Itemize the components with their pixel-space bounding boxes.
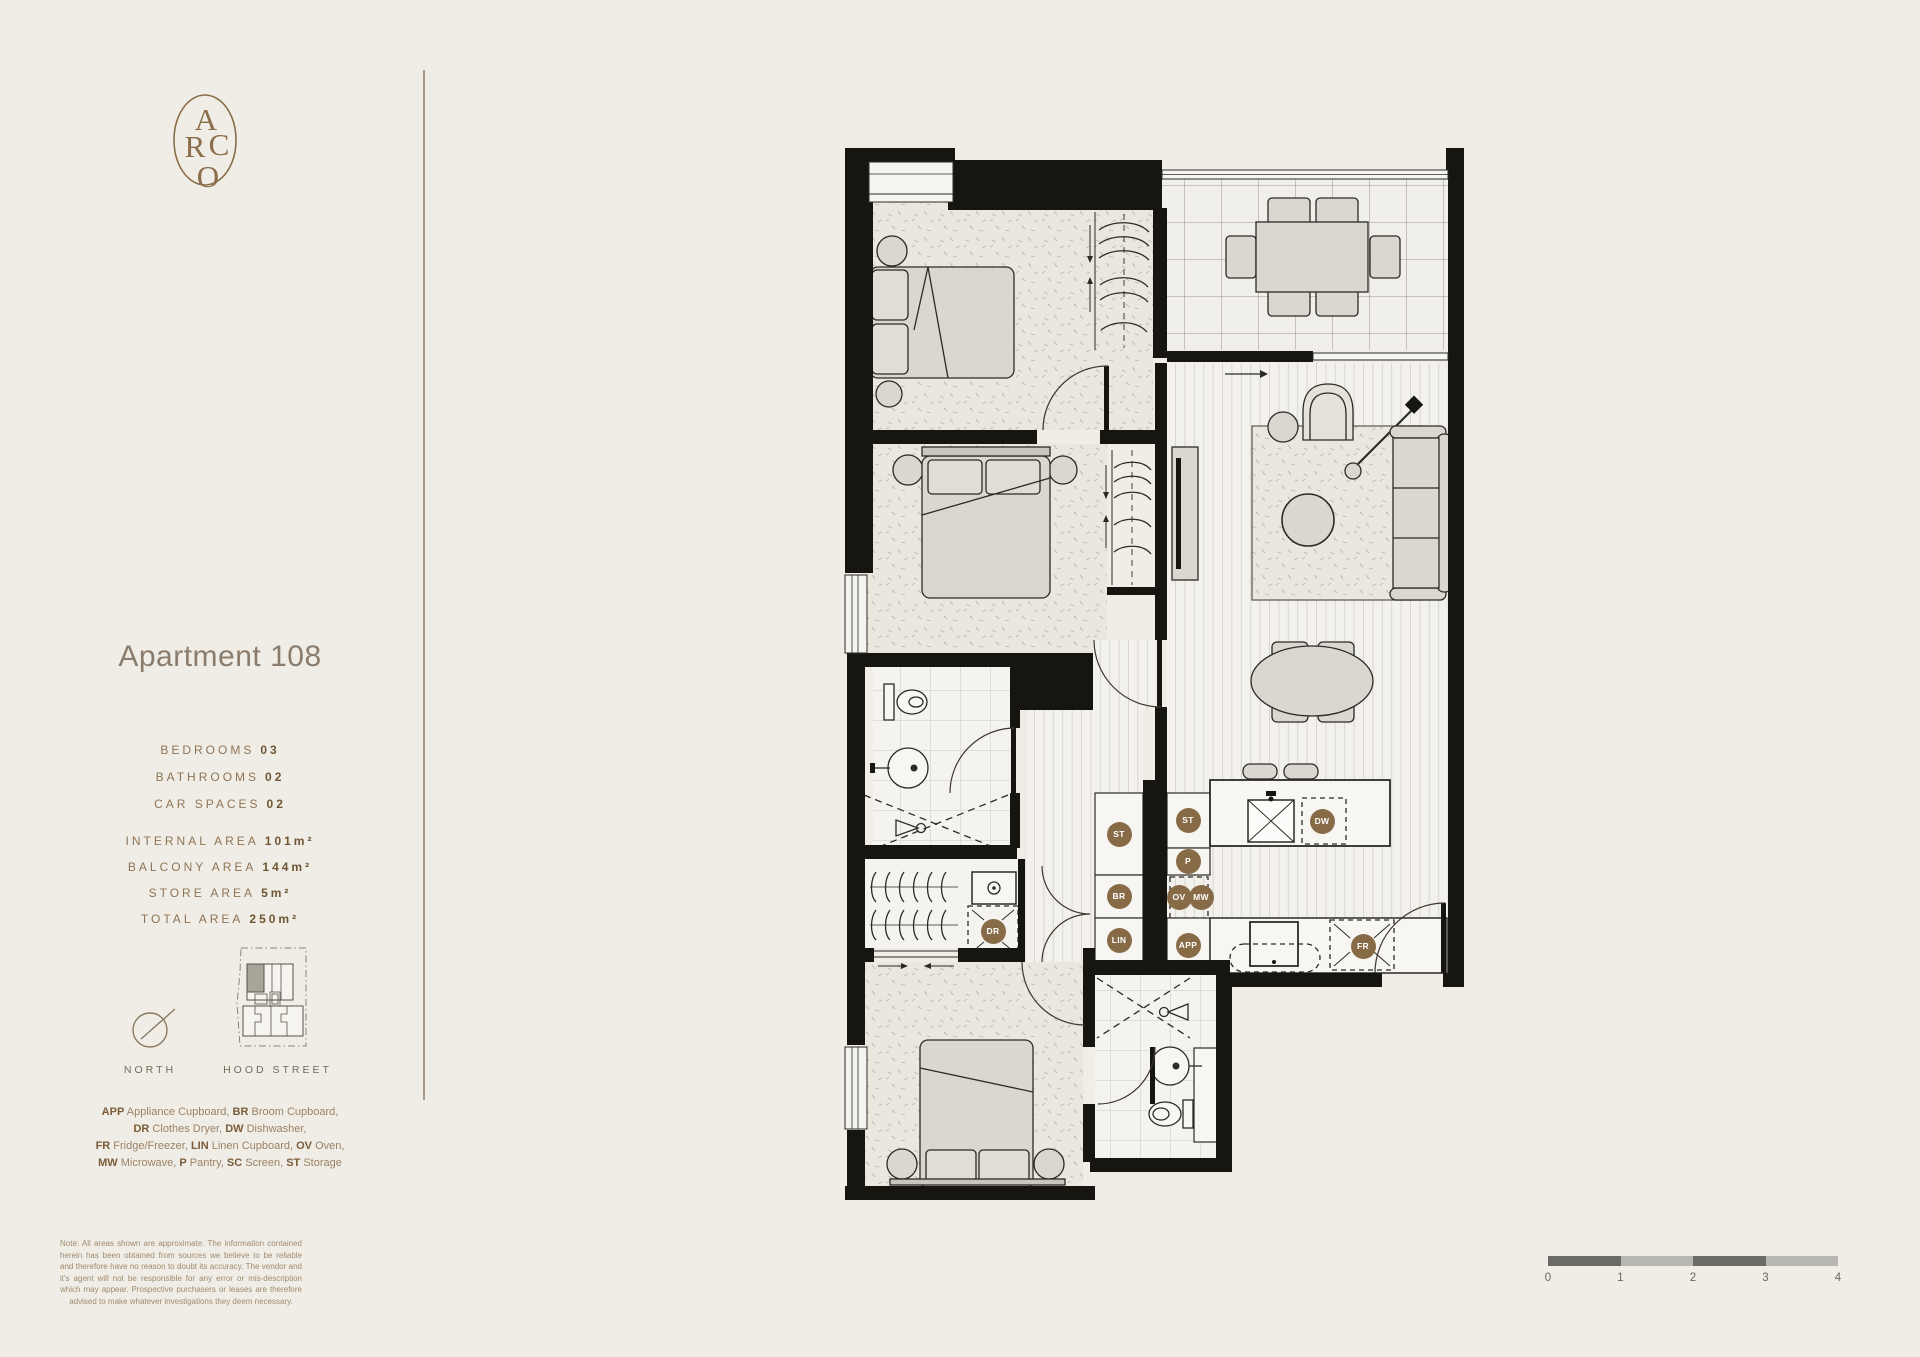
logo-letter-c: C <box>209 127 230 162</box>
scale-segment <box>1693 1256 1766 1266</box>
window-bed2 <box>845 575 867 653</box>
stats-list: BEDROOMS03BATHROOMS02CAR SPACES02 <box>50 737 390 818</box>
area-store-area: STORE AREA5m² <box>50 880 390 906</box>
area-total-area: TOTAL AREA250m² <box>50 906 390 932</box>
stat-car-spaces: CAR SPACES02 <box>50 791 390 818</box>
vertical-divider <box>423 70 425 1100</box>
disclaimer-note: Note: All areas shown are approximate. T… <box>60 1238 302 1307</box>
scale-segment <box>1766 1256 1839 1266</box>
logo-letter-o: O <box>197 159 219 194</box>
keyplan-unit-highlight <box>247 964 264 992</box>
appliance-tag-app: APP <box>1176 933 1201 958</box>
legend-line: MW Microwave, P Pantry, SC Screen, ST St… <box>58 1155 382 1172</box>
wardrobe-2 <box>1103 450 1151 585</box>
legend-line: APP Appliance Cupboard, BR Broom Cupboar… <box>58 1104 382 1121</box>
key-plan <box>235 942 320 1054</box>
areas-list: INTERNAL AREA101m²BALCONY AREA144m²STORE… <box>50 828 390 932</box>
appliance-tag-br: BR <box>1107 884 1132 909</box>
appliance-tag-st: ST <box>1107 822 1132 847</box>
appliance-tag-mw: MW <box>1189 885 1214 910</box>
appliance-tag-dr: DR <box>981 919 1006 944</box>
area-internal-area: INTERNAL AREA101m² <box>50 828 390 854</box>
window-bed1 <box>869 162 953 202</box>
kitchen-bench <box>1210 918 1447 973</box>
appliance-tag-dw: DW <box>1310 809 1335 834</box>
page-title: Apartment 108 <box>60 640 380 674</box>
legend-line: DR Clothes Dryer, DW Dishwasher, <box>58 1121 382 1138</box>
stat-bedrooms: BEDROOMS03 <box>50 737 390 764</box>
scale-tick-label: 1 <box>1617 1272 1623 1284</box>
sliding-door-panel <box>1167 351 1313 362</box>
scale-tick-label: 2 <box>1690 1272 1696 1284</box>
north-circle <box>133 1013 167 1047</box>
stat-bathrooms: BATHROOMS02 <box>50 764 390 791</box>
appliance-tag-lin: LIN <box>1107 928 1132 953</box>
sofa <box>1390 426 1452 600</box>
scale-segment <box>1621 1256 1694 1266</box>
tv-unit <box>1172 447 1198 580</box>
scale-tick-label: 3 <box>1762 1272 1768 1284</box>
appliance-tag-st: ST <box>1176 808 1201 833</box>
appliance-tag-p: P <box>1176 849 1201 874</box>
appliance-tag-fr: FR <box>1351 934 1376 959</box>
arc-logo: A R C O <box>150 86 260 198</box>
scale-tick-label: 4 <box>1835 1272 1841 1284</box>
area-balcony-area: BALCONY AREA144m² <box>50 854 390 880</box>
appliance-tag-ov: OV <box>1167 885 1192 910</box>
floorplan-page: A R C O Apartment 108 BEDROOMS03BATHROOM… <box>0 0 1920 1357</box>
scale-segment <box>1548 1256 1621 1266</box>
window-bed3 <box>845 1047 867 1129</box>
north-label: NORTH <box>90 1064 210 1076</box>
scale-segments <box>1548 1256 1838 1266</box>
legend-line: FR Fridge/Freezer, LIN Linen Cupboard, O… <box>58 1138 382 1155</box>
tv-screen <box>1176 458 1181 569</box>
north-indicator <box>118 1002 184 1058</box>
scale-bar: 01234 <box>1548 1256 1838 1290</box>
scale-tick-label: 0 <box>1545 1272 1551 1284</box>
abbreviation-legend: APP Appliance Cupboard, BR Broom Cupboar… <box>58 1104 382 1172</box>
island-bench <box>1210 780 1390 846</box>
keyplan-label: HOOD STREET <box>210 1064 345 1076</box>
floor-plan <box>830 100 1510 1220</box>
ottoman <box>1282 494 1334 546</box>
